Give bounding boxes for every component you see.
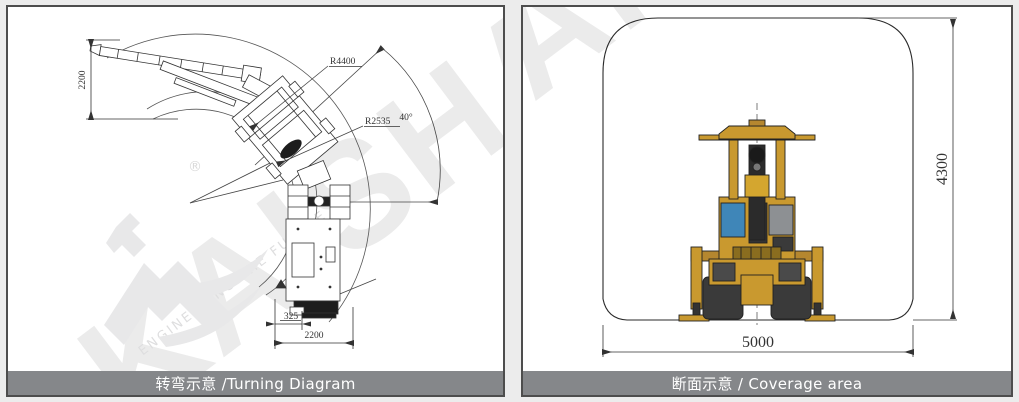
outrigger-leg-right: [812, 247, 823, 309]
coverage-area-caption: 断面示意 / Coverage area: [523, 371, 1011, 395]
turning-diagram-drawing: 40°: [8, 7, 503, 371]
engine-module: [769, 205, 793, 235]
carrier-width-label: 2200: [305, 331, 324, 341]
machine-front-view: [679, 120, 835, 321]
coverage-area-drawing: 4300 5000: [523, 7, 1011, 371]
canopy-post-right: [776, 139, 785, 199]
coverage-area-panel: KAISHAN: [521, 5, 1013, 397]
turning-diagram-panel: KAISHAN ENGINEERING THE FUTURE ®: [6, 5, 505, 397]
machine-carrier-top-view: [276, 185, 350, 318]
cab-window: [721, 203, 745, 237]
inner-radius-label: R2535: [365, 117, 391, 127]
outrigger-leg-left: [691, 247, 702, 309]
tunnel-height-dimension: 4300: [858, 18, 957, 320]
tunnel-width-label: 5000: [742, 334, 774, 351]
outer-radius-label: R4400: [330, 57, 356, 67]
coverage-area-caption-text: 断面示意 / Coverage area: [672, 373, 863, 394]
turning-diagram-caption-text: 转弯示意 /Turning Diagram: [155, 373, 355, 394]
turning-diagram-caption: 转弯示意 /Turning Diagram: [8, 371, 503, 395]
machine-front-frame: [227, 72, 342, 190]
angle-label: 40°: [399, 112, 413, 123]
canopy-roof: [719, 126, 795, 139]
canopy-post-left: [729, 139, 738, 199]
tunnel-height-label: 4300: [934, 153, 951, 185]
tunnel-width-dimension: 5000: [603, 325, 913, 357]
boom-offset-label: 2200: [78, 70, 88, 89]
